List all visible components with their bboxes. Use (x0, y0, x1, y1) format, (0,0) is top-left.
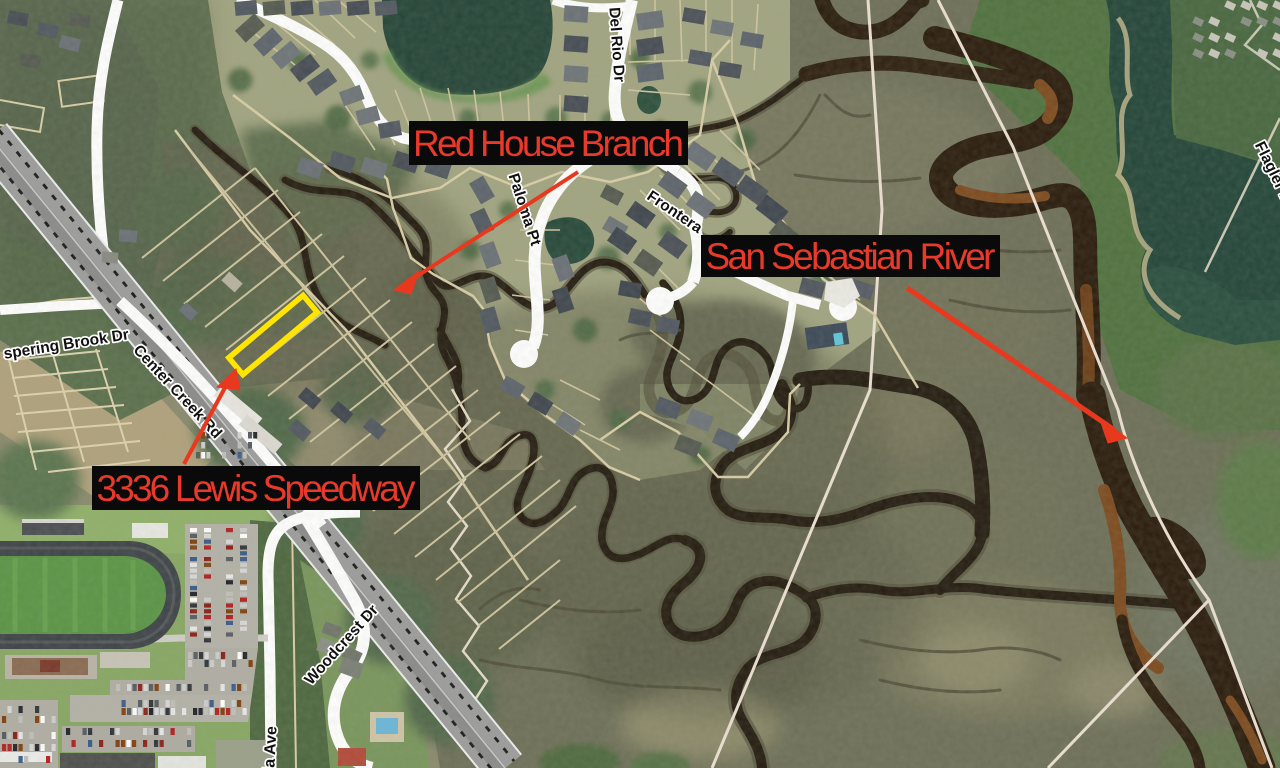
svg-text:3336 Lewis Speedway: 3336 Lewis Speedway (97, 468, 417, 509)
svg-text:San Sebastian River: San Sebastian River (706, 236, 996, 277)
svg-text:ella Ave: ella Ave (260, 726, 280, 768)
svg-text:Red House Branch: Red House Branch (413, 123, 684, 164)
